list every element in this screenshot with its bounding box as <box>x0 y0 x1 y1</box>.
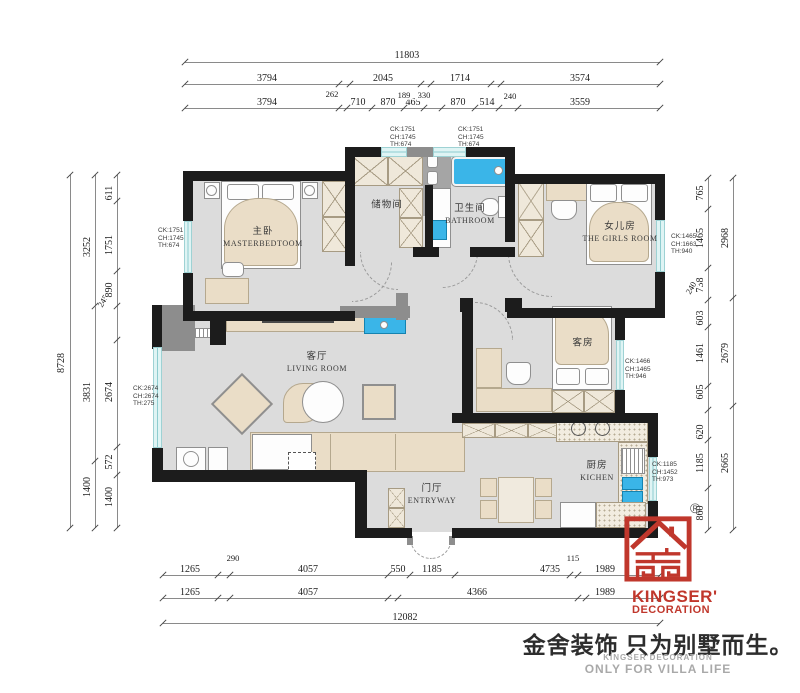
washer-door <box>183 451 199 467</box>
dim-value: 8728 <box>57 351 67 375</box>
room-label-storage: 储物间 <box>371 200 403 213</box>
guest-cabinet <box>476 348 502 388</box>
wall <box>648 413 658 457</box>
guest-wardrobe <box>584 390 615 413</box>
girls-pillow <box>621 184 648 202</box>
spec-line: TH:674 <box>458 141 484 149</box>
wall <box>183 311 355 321</box>
dim-value: 2045 <box>371 74 395 84</box>
wall <box>152 448 163 482</box>
master-desk <box>205 278 249 304</box>
dim-tick <box>91 524 98 531</box>
room-label-entry: 门厅 ENTRYWAY <box>408 483 457 507</box>
dim-value: 4057 <box>296 588 320 598</box>
dim-value: 603 <box>696 309 706 328</box>
room-label-living-cn: 客厅 <box>287 351 347 364</box>
girls-chair <box>551 200 577 220</box>
spec-line: CH:1465 <box>625 366 651 374</box>
hall-basin-faucet <box>380 321 388 329</box>
room-label-bathroom-cn: 卫生间 <box>445 203 495 216</box>
brand-slogan-sub2: ONLY FOR VILLA LIFE <box>585 662 732 676</box>
dim-value: 1265 <box>178 565 202 575</box>
wall <box>452 528 552 538</box>
window-master-left <box>184 221 192 273</box>
master-chair <box>222 262 244 277</box>
dim-value: 1400 <box>83 475 93 499</box>
spec-line: CH:1452 <box>652 469 678 477</box>
hall-cabinet <box>495 423 528 438</box>
dim-tick <box>656 58 663 65</box>
spec-line: CH:1745 <box>158 235 184 243</box>
dim-tick <box>656 104 663 111</box>
dim-value: 3574 <box>568 74 592 84</box>
wall <box>345 171 355 266</box>
dim-value: 1714 <box>448 74 472 84</box>
armchair <box>362 384 396 420</box>
dining-chair <box>535 478 552 497</box>
dim-value: 870 <box>449 98 468 108</box>
wall <box>505 174 665 184</box>
spec-line: CH:2674 <box>133 393 159 401</box>
floor-plan-canvas: 主卧 MASTERBEDTOOM 储物间 卫生间 BATHROOM 女儿房 TH… <box>0 0 800 693</box>
dim-value: 262 <box>324 90 341 99</box>
dim-value: 1751 <box>105 233 115 257</box>
girls-pillow <box>590 184 617 202</box>
dim-value: 1185 <box>420 565 444 575</box>
spec-line: TH:674 <box>390 141 416 149</box>
dim-value: 115 <box>565 554 581 563</box>
dim-value: 12082 <box>391 613 420 623</box>
room-label-master-en: MASTERBEDTOOM <box>223 239 303 250</box>
dim-value: 2665 <box>721 451 731 475</box>
spec-line: TH:275 <box>133 400 159 408</box>
dim-line <box>185 62 660 63</box>
dim-value: 1185 <box>696 451 706 475</box>
dim-value: 240 <box>502 92 519 101</box>
spec-line: CK:1751 <box>158 227 184 235</box>
spec-line: TH:946 <box>625 373 651 381</box>
wall <box>505 147 515 242</box>
dim-value: 3831 <box>83 380 93 404</box>
spec-line: CK:2674 <box>133 385 159 393</box>
wall <box>413 247 439 257</box>
dim-value: 4057 <box>296 565 320 575</box>
sofa-seat-divider <box>395 434 396 470</box>
girls-desk <box>546 183 588 201</box>
dim-value: 11803 <box>393 51 422 61</box>
hall-cabinet <box>462 423 495 438</box>
room-label-master: 主卧 MASTERBEDTOOM <box>223 226 303 250</box>
room-label-girls-cn: 女儿房 <box>582 221 657 234</box>
spec-line: CK:1466 <box>625 358 651 366</box>
shoe-cabinet <box>388 508 405 528</box>
dim-tick <box>704 526 711 533</box>
wall <box>452 413 617 423</box>
dim-value: 2968 <box>721 226 731 250</box>
guest-wardrobe <box>552 390 584 413</box>
dim-line <box>708 178 709 530</box>
spec-line: CH:1745 <box>390 134 416 142</box>
wall <box>163 470 360 482</box>
room-label-bathroom: 卫生间 BATHROOM <box>445 203 495 227</box>
wall <box>470 247 515 257</box>
girls-wardrobe <box>518 182 544 220</box>
window-spec-guest-right: CK:1466 CH:1465 TH:946 <box>625 358 651 381</box>
dim-line <box>70 175 71 528</box>
dim-value: 3794 <box>255 98 279 108</box>
lamp <box>304 185 315 196</box>
brand-name-line1: KINGSER' <box>632 588 718 605</box>
wall <box>615 308 625 340</box>
room-label-girls: 女儿房 THE GIRLS ROOM <box>582 221 657 245</box>
dim-line <box>163 575 660 576</box>
utility-cabinet <box>208 447 228 472</box>
window-guest-right <box>616 340 624 390</box>
guest-desk <box>476 388 552 412</box>
guest-pillow <box>585 368 609 385</box>
window-spec-top-storage: CK:1751 CH:1745 TH:674 <box>390 126 416 149</box>
dim-value: 189 <box>396 91 413 100</box>
stove-burner <box>595 421 610 436</box>
dim-value: 4366 <box>465 588 489 598</box>
entry-door-arc <box>410 538 431 559</box>
dim-line <box>163 623 660 624</box>
dim-value: 1461 <box>696 341 706 365</box>
dim-value: 870 <box>379 98 398 108</box>
room-label-living: 客厅 LIVING ROOM <box>287 351 347 375</box>
wall <box>367 528 412 538</box>
dim-value: 1989 <box>593 588 617 598</box>
room-label-girls-en: THE GIRLS ROOM <box>582 234 657 245</box>
room-label-entry-en: ENTRYWAY <box>408 496 457 507</box>
dim-tick <box>729 526 736 533</box>
spec-line: CK:1751 <box>390 126 416 134</box>
dim-value: 330 <box>416 91 433 100</box>
dim-value: 605 <box>696 383 706 402</box>
room-label-bathroom-en: BATHROOM <box>445 216 495 227</box>
dish-rack <box>621 448 645 474</box>
dim-value: 620 <box>696 423 706 442</box>
dim-value: 3794 <box>255 74 279 84</box>
dim-value: 550 <box>389 565 408 575</box>
wall <box>152 305 162 349</box>
storage-cabinet <box>388 156 423 186</box>
room-label-master-cn: 主卧 <box>223 226 303 239</box>
dim-value: 1989 <box>593 565 617 575</box>
wall <box>462 298 473 418</box>
dim-value: 290 <box>225 554 242 563</box>
wall <box>210 311 226 345</box>
dim-value: 572 <box>105 453 115 472</box>
window-spec-master-left: CK:1751 CH:1745 TH:674 <box>158 227 184 250</box>
coffee-table <box>302 381 344 423</box>
dim-line <box>185 84 660 85</box>
sofa-seat-divider <box>330 434 331 470</box>
dim-line <box>733 178 734 530</box>
dim-value: 1465 <box>696 226 706 250</box>
dim-tick <box>113 524 120 531</box>
storage-cabinet <box>352 156 388 186</box>
dim-tick <box>66 524 73 531</box>
wall <box>345 147 383 157</box>
spec-line: TH:940 <box>671 248 697 256</box>
dim-value: 2679 <box>721 341 731 365</box>
dim-value: 765 <box>696 184 706 203</box>
dim-value: 890 <box>105 281 115 300</box>
room-label-kitchen-en: KICHEN <box>580 473 614 484</box>
shaft-basin <box>427 171 438 185</box>
kitchen-appliance <box>560 502 596 528</box>
dining-chair <box>535 500 552 519</box>
window-spec-girls-right: CK:1465 CH:1663 TH:940 <box>671 233 697 256</box>
window-spec-living-left: CK:2674 CH:2674 TH:275 <box>133 385 159 408</box>
room-label-living-en: LIVING ROOM <box>287 364 347 375</box>
dining-chair <box>480 478 497 497</box>
dim-value: 1400 <box>105 485 115 509</box>
dim-value: 3252 <box>83 235 93 259</box>
brand-slogan-sub1: KINGSER'DECORATION <box>603 653 713 662</box>
room-label-entry-cn: 门厅 <box>408 483 457 496</box>
room-label-guest: 客房 <box>572 338 593 351</box>
shoe-cabinet <box>388 488 405 508</box>
kitchen-sink <box>622 477 643 490</box>
guest-pillow <box>556 368 580 385</box>
dim-value: 710 <box>349 98 368 108</box>
spec-line: CH:1663 <box>671 241 697 249</box>
spec-line: TH:973 <box>652 476 678 484</box>
room-label-kitchen: 厨房 KICHEN <box>580 460 614 484</box>
wall <box>655 174 665 220</box>
dim-tick <box>656 80 663 87</box>
window-spec-top-bath: CK:1751 CH:1745 TH:674 <box>458 126 484 149</box>
room-label-kitchen-cn: 厨房 <box>580 460 614 473</box>
stove-burner <box>571 421 586 436</box>
dim-value: 2674 <box>105 380 115 404</box>
brand-name-line2: DECORATION <box>632 605 710 616</box>
storage-cabinet <box>399 218 423 248</box>
girls-wardrobe <box>518 220 544 257</box>
guest-chair <box>506 362 531 385</box>
bathtub-drain <box>494 166 503 175</box>
room-label-guest-cn: 客房 <box>572 338 593 351</box>
dim-value: 1265 <box>178 588 202 598</box>
spec-line: CK:1751 <box>458 126 484 134</box>
dining-chair <box>480 500 497 519</box>
dining-table <box>498 477 534 523</box>
wall <box>425 185 433 249</box>
lamp <box>206 185 217 196</box>
kingser-logo-icon <box>623 510 693 584</box>
dim-value: 3559 <box>568 98 592 108</box>
dim-value: 514 <box>478 98 497 108</box>
window-spec-kitchen-right: CK:1185 CH:1452 TH:973 <box>652 461 678 484</box>
wall <box>183 171 193 221</box>
spec-line: CK:1465 <box>671 233 697 241</box>
room-label-storage-cn: 储物间 <box>371 200 403 213</box>
spec-line: CK:1185 <box>652 461 678 469</box>
wall <box>183 171 355 181</box>
spec-line: CH:1745 <box>458 134 484 142</box>
dim-line <box>95 175 96 528</box>
dim-value: 4735 <box>538 565 562 575</box>
wall-gray <box>396 293 408 320</box>
wall <box>620 308 665 318</box>
wall <box>507 308 625 318</box>
spec-line: TH:674 <box>158 242 184 250</box>
dim-value: 611 <box>105 184 115 203</box>
